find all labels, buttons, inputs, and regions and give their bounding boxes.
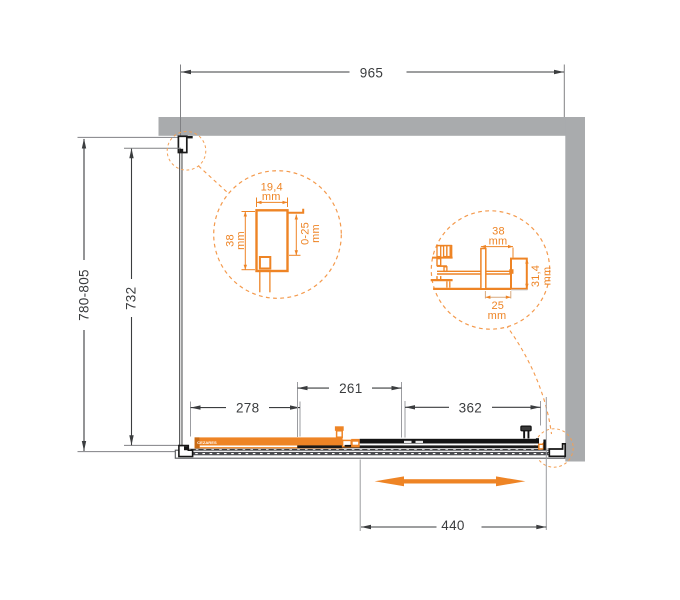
svg-text:mm: mm [262,191,281,203]
svg-text:440: 440 [441,518,464,533]
svg-text:31,4: 31,4 [530,265,542,287]
svg-text:278: 278 [236,400,259,415]
svg-text:mm: mm [488,310,507,322]
svg-text:mm: mm [489,235,508,247]
svg-text:780-805: 780-805 [77,269,92,321]
svg-text:CEZARES: CEZARES [197,441,217,445]
svg-text:mm: mm [235,231,247,250]
svg-text:965: 965 [360,66,383,81]
svg-text:732: 732 [124,287,139,310]
svg-text:362: 362 [459,401,482,416]
svg-text:mm: mm [541,267,553,286]
svg-text:261: 261 [339,381,362,396]
svg-text:mm: mm [310,224,322,243]
